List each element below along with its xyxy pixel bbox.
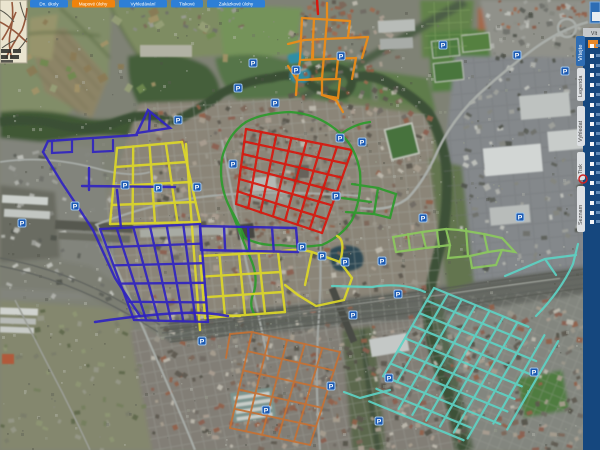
svg-text:P: P — [339, 54, 344, 61]
svg-text:P: P — [421, 216, 426, 223]
svg-text:P: P — [176, 118, 181, 125]
svg-text:Vyhledávání: Vyhledávání — [130, 1, 156, 6]
svg-text:Legenda: Legenda — [578, 75, 584, 97]
svg-text:P: P — [236, 86, 241, 93]
svg-text:Mapové úlohy: Mapové úlohy — [79, 1, 108, 6]
svg-text:P: P — [387, 376, 392, 383]
svg-text:P: P — [264, 408, 269, 415]
svg-text:P: P — [73, 204, 78, 211]
svg-text:Vítejte: Vítejte — [578, 45, 584, 61]
svg-text:Vít: Vít — [591, 31, 598, 37]
svg-text:P: P — [515, 53, 520, 60]
svg-text:P: P — [338, 136, 343, 143]
svg-text:Zakázkové úlohy: Zakázkové úlohy — [219, 1, 254, 6]
svg-text:P: P — [329, 384, 334, 391]
svg-text:Vyhledat: Vyhledat — [578, 120, 584, 142]
svg-text:P: P — [380, 259, 385, 266]
svg-text:P: P — [200, 339, 205, 346]
svg-text:Dn. úkoly: Dn. úkoly — [39, 1, 59, 6]
svg-text:P: P — [518, 215, 523, 222]
svg-text:P: P — [377, 419, 382, 426]
svg-text:Seznam: Seznam — [578, 204, 584, 225]
svg-text:P: P — [441, 43, 446, 50]
svg-text:P: P — [251, 61, 256, 68]
svg-text:P: P — [563, 69, 568, 76]
svg-text:P: P — [396, 292, 401, 299]
svg-text:P: P — [360, 140, 365, 147]
svg-text:P: P — [20, 221, 25, 228]
svg-text:P: P — [195, 185, 200, 192]
svg-text:P: P — [532, 370, 537, 377]
svg-text:P: P — [231, 162, 236, 169]
svg-text:Tiskové: Tiskové — [179, 1, 195, 6]
svg-text:P: P — [343, 260, 348, 267]
svg-text:P: P — [300, 245, 305, 252]
svg-text:Tisk: Tisk — [578, 164, 584, 174]
svg-text:P: P — [351, 313, 356, 320]
svg-text:P: P — [320, 254, 325, 261]
svg-text:P: P — [273, 101, 278, 108]
svg-text:P: P — [294, 68, 299, 75]
svg-text:P: P — [156, 186, 161, 193]
svg-text:P: P — [123, 183, 128, 190]
svg-text:P: P — [334, 194, 339, 201]
